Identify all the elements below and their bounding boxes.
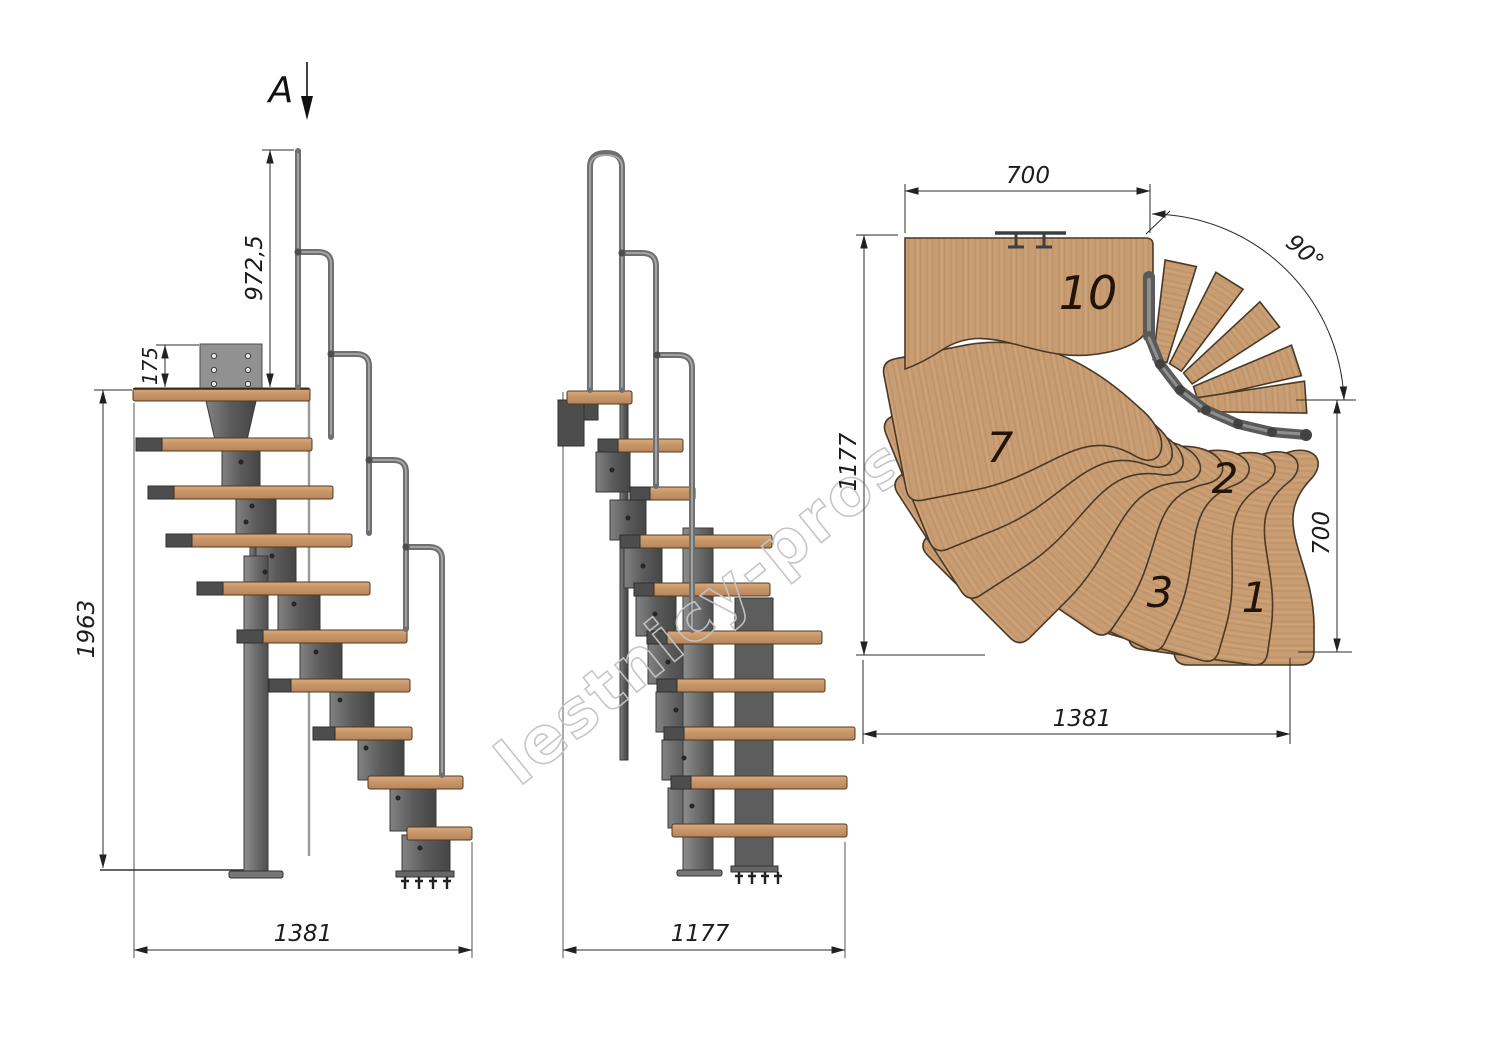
dim-label: 1177 [671,921,730,947]
dim-bracket-offset: 175 [138,345,199,387]
tread-number: 10 [1059,266,1118,320]
dim-front-base-width: 1177 [563,921,845,950]
wall-bracket [200,344,262,389]
tread [197,582,370,595]
dim-label: 1177 [836,432,862,491]
tread [598,439,683,452]
tread [133,388,310,401]
tread [664,727,855,740]
dim-label: 972,5 [242,235,268,301]
section-arrow-icon [301,96,313,120]
drawing-canvas: lestnicy-prosto.ru [0,0,1500,1061]
tread [630,487,695,500]
tread-number: 1 [1242,573,1269,622]
tread [368,776,463,789]
section-marker: A [267,62,313,120]
tread [148,486,333,499]
tread-number: 2 [1212,454,1239,503]
dim-label: 1963 [74,600,100,659]
tread [136,438,312,451]
tread [671,776,847,789]
plan-view: 10 7 3 2 1 [881,233,1318,667]
tread-number: 3 [1147,568,1174,617]
tread [269,679,410,692]
tread [672,824,847,837]
base-flange [731,866,778,872]
rail-joints [295,249,410,551]
dim-label: 90° [1281,230,1329,276]
column-base-plate [229,871,283,878]
dim-label: 700 [1006,163,1050,189]
side-view-support-modules [206,401,454,889]
tread [166,534,352,547]
tread [407,827,472,840]
inner-tread-slivers [1144,260,1306,421]
dim-label: 175 [138,347,162,385]
dim-label: 1381 [1053,706,1112,732]
section-label: A [267,70,294,111]
staircase-technical-drawing: lestnicy-prosto.ru [0,0,1500,1061]
side-elevation-view [100,151,472,958]
anchor-bolts [735,872,782,884]
dim-label: 700 [1309,511,1335,555]
support-column [244,556,268,874]
tread-number: 7 [987,423,1014,472]
column-base-plate [677,870,722,876]
anchor-bolts [401,877,451,889]
dim-total-height: 1963 [74,390,132,868]
dim-side-base-length: 1381 [134,921,472,950]
dim-label: 1381 [274,921,333,947]
base-flange [396,871,454,877]
tread [313,727,412,740]
tread [657,679,825,692]
tread [237,630,407,643]
dim-plan-top-width: 700 [905,163,1150,233]
dim-plan-total-length: 1381 [863,658,1290,744]
